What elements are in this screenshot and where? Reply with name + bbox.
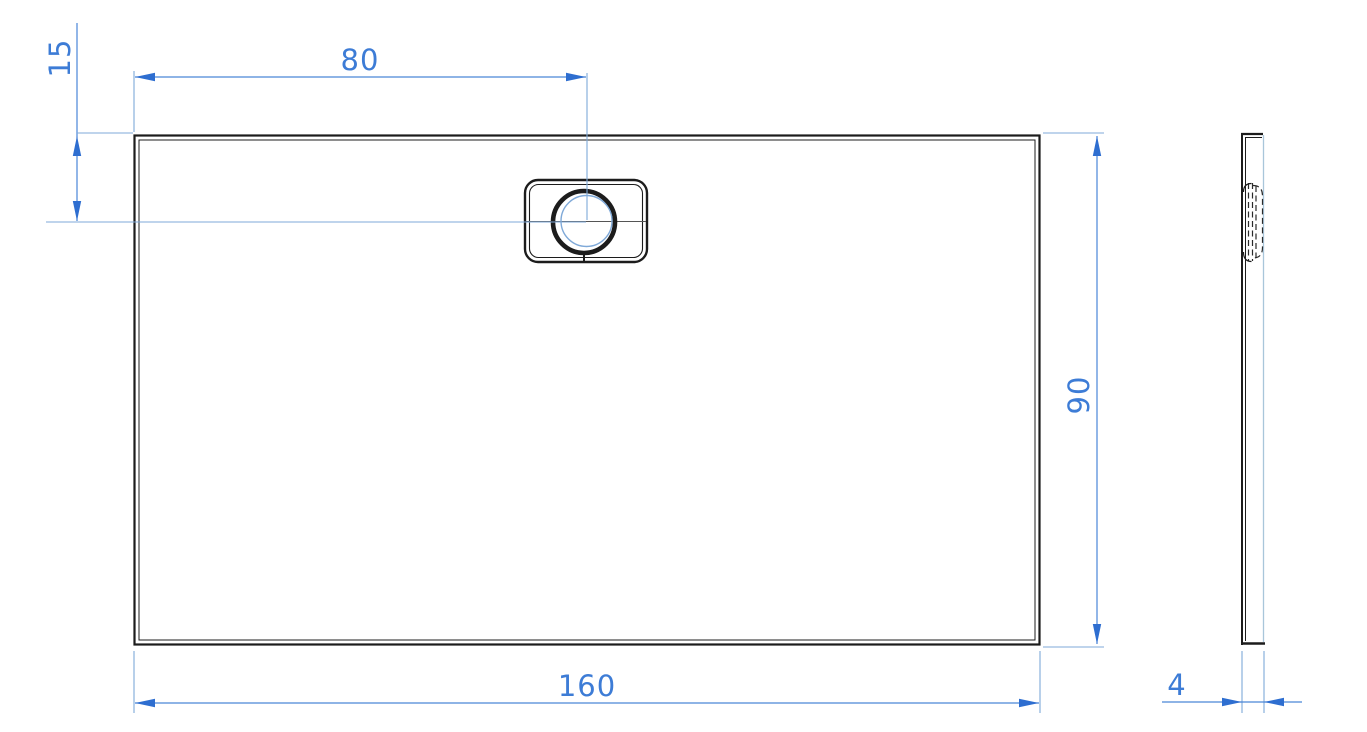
dim-4-label: 4 (1167, 668, 1186, 702)
hidden-drain-bulge (1253, 186, 1263, 259)
drain-assembly (525, 180, 647, 262)
dim-15-arrow-top (73, 136, 81, 156)
dim-80-label: 80 (341, 43, 380, 77)
side-view (1241, 133, 1265, 645)
dimension-90: 90 (1043, 133, 1104, 647)
dim-90-arrow-top (1093, 136, 1101, 156)
dim-160-label: 160 (558, 669, 616, 703)
dim-80-arrow-right (566, 73, 586, 81)
technical-drawing-canvas: 80 15 90 160 (0, 0, 1367, 732)
dim-90-label: 90 (1062, 376, 1096, 415)
dim-80-arrow-left (135, 73, 155, 81)
drain-recess-bottom-contour (1244, 252, 1252, 262)
dim-160-arrow-right (1019, 699, 1039, 707)
dim-90-arrow-bottom (1093, 624, 1101, 644)
dimension-4: 4 (1162, 651, 1302, 713)
dim-4-arrow-right (1264, 698, 1284, 706)
dim-160-arrow-left (135, 699, 155, 707)
dim-15-label: 15 (43, 39, 77, 78)
side-hidden-drain-lines (1249, 183, 1263, 261)
dim-15-arrow-bottom (73, 201, 81, 221)
dimension-15: 15 (43, 23, 133, 221)
dim-4-arrow-left (1222, 698, 1242, 706)
dimension-80: 80 (134, 43, 586, 132)
plan-view (46, 73, 1040, 645)
drain-recess-top-contour (1244, 184, 1252, 193)
dimension-160: 160 (134, 651, 1040, 713)
drawing-svg: 80 15 90 160 (0, 0, 1367, 732)
